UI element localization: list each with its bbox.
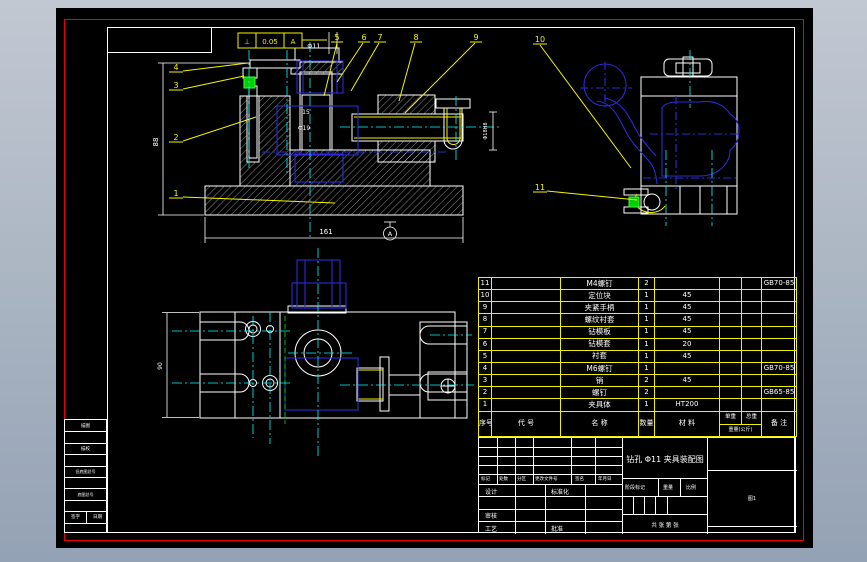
bom-cell-tw xyxy=(742,387,762,399)
bom-cell-qty: 1 xyxy=(639,302,655,314)
bom-cell-name: M6螺钉 xyxy=(561,362,639,374)
stage-mark-label: 阶段标记 xyxy=(625,484,645,491)
aux-date-label: 日期 xyxy=(87,514,108,520)
balloon-8: 8 xyxy=(413,33,418,42)
bom-row: 1夹具体1HT200 xyxy=(479,399,797,411)
scale-label: 比例 xyxy=(686,484,696,491)
bom-cell-no: 3 xyxy=(479,375,492,387)
revision-date-label: 年月日 xyxy=(598,476,612,482)
bom-row: 6钻模套120 xyxy=(479,338,797,350)
bom-cell-code xyxy=(492,314,561,326)
bom-cell-remark xyxy=(762,338,797,350)
bom-cell-uw xyxy=(720,290,742,302)
handle-highlight-edges xyxy=(357,370,383,399)
bom-header-weight-unit: 重量(公斤) xyxy=(720,424,762,436)
bom-header-name: 名 称 xyxy=(561,411,639,436)
aux-sign-label: 签字 xyxy=(65,514,86,520)
balloon-3: 3 xyxy=(173,81,178,90)
bom-cell-qty: 1 xyxy=(639,350,655,362)
bom-row: 10定位块145 xyxy=(479,290,797,302)
balloon-6: 6 xyxy=(361,33,366,42)
dim-front-width: 161 xyxy=(319,228,332,236)
bom-cell-remark xyxy=(762,314,797,326)
revision-count-label: 处数 xyxy=(499,476,508,482)
bom-cell-qty: 1 xyxy=(639,290,655,302)
bom-cell-uw xyxy=(720,399,742,411)
cad-viewport[interactable]: 88 161 Φ11 15 Φ19 Φ18H8 A ⊥ 0.05 A xyxy=(0,0,867,562)
view-front-section[interactable]: 88 161 Φ11 15 Φ19 Φ18H8 A ⊥ 0.05 A xyxy=(152,32,500,243)
dim-shaft: Φ18H8 xyxy=(483,122,489,139)
bom-row: 11M4螺钉2GB70-85 xyxy=(479,278,797,290)
datum-symbol: A xyxy=(388,230,393,238)
bom-cell-code xyxy=(492,399,561,411)
balloon-10: 10 xyxy=(535,35,545,44)
org-name: 图1 xyxy=(707,495,797,502)
bom-header-unit-weight: 单重 xyxy=(720,411,742,424)
bom-cell-material: 20 xyxy=(655,338,720,350)
drawing-title: 钻孔 Φ11 夹具装配图 xyxy=(625,454,705,465)
bom-cell-tw xyxy=(742,399,762,411)
bom-cell-tw xyxy=(742,302,762,314)
bom-cell-no: 1 xyxy=(479,399,492,411)
bom-row: 8螺纹衬套145 xyxy=(479,314,797,326)
bom-row: 5衬套145 xyxy=(479,350,797,362)
bom-cell-no: 6 xyxy=(479,338,492,350)
checker-label: 审核 xyxy=(485,511,497,520)
bom-cell-no: 5 xyxy=(479,350,492,362)
weight-label: 重量 xyxy=(663,484,673,491)
balloon-9: 9 xyxy=(473,33,478,42)
bom-cell-remark xyxy=(762,399,797,411)
bom-cell-no: 2 xyxy=(479,387,492,399)
bom-cell-material: 45 xyxy=(655,326,720,338)
revision-docno-label: 更改文件号 xyxy=(535,476,558,482)
revision-zone-label: 分区 xyxy=(517,476,526,482)
bom-header-qty: 数量 xyxy=(639,411,655,436)
aux-old-master-label: 旧底图总号 xyxy=(65,469,106,475)
bom-cell-material xyxy=(655,278,720,290)
view-side[interactable] xyxy=(580,50,740,226)
bom-cell-uw xyxy=(720,362,742,374)
bom-cell-code xyxy=(492,375,561,387)
bom-cell-uw xyxy=(720,375,742,387)
sheet-count-label: 共 张 第 张 xyxy=(626,521,704,529)
bom-cell-qty: 2 xyxy=(639,387,655,399)
bom-cell-tw xyxy=(742,338,762,350)
aux-master-label: 底图总号 xyxy=(65,492,106,498)
bom-cell-name: 销 xyxy=(561,375,639,387)
bom-header-total-weight: 总重 xyxy=(742,411,762,424)
approver-label: 批准 xyxy=(551,524,563,533)
dim-plan-height: 90 xyxy=(157,362,164,370)
standardization-label: 标准化 xyxy=(551,487,569,496)
workpiece-phantom-plan xyxy=(285,260,358,410)
bom-row: 9夹紧手柄145 xyxy=(479,302,797,314)
process-label: 工艺 xyxy=(485,524,497,533)
workpiece-phantom-side xyxy=(580,62,740,190)
bom-cell-name: 螺纹衬套 xyxy=(561,314,639,326)
bom-cell-qty: 1 xyxy=(639,314,655,326)
bom-header-no: 序号 xyxy=(479,411,492,436)
aux-trace-label: 描图 xyxy=(65,423,106,429)
bom-header-row: 序号 代 号 名 称 数量 材 料 单重 总重 备 注 xyxy=(479,411,797,424)
bom-row: 2螺钉2GB65-85 xyxy=(479,387,797,399)
bom-cell-no: 11 xyxy=(479,278,492,290)
bom-cell-tw xyxy=(742,350,762,362)
bom-cell-material: HT200 xyxy=(655,399,720,411)
bom-row: 3销245 xyxy=(479,375,797,387)
bom-cell-uw xyxy=(720,314,742,326)
view-plan[interactable]: 90 xyxy=(157,248,474,458)
aux-trace-check-label: 描校 xyxy=(65,446,106,452)
balloon-7: 7 xyxy=(377,33,382,42)
bom-cell-material: 45 xyxy=(655,290,720,302)
bom-header-material: 材 料 xyxy=(655,411,720,436)
bom-cell-material: 45 xyxy=(655,302,720,314)
bom-cell-no: 8 xyxy=(479,314,492,326)
bom-cell-name: 定位块 xyxy=(561,290,639,302)
bom-row: 7钻模板145 xyxy=(479,326,797,338)
dim-front-height: 88 xyxy=(152,138,160,147)
bom-cell-remark xyxy=(762,302,797,314)
bom-cell-tw xyxy=(742,314,762,326)
bom-header-code: 代 号 xyxy=(492,411,561,436)
bom-header-remark: 备 注 xyxy=(762,411,797,436)
bom-cell-material: 45 xyxy=(655,314,720,326)
bom-cell-remark xyxy=(762,326,797,338)
bom-row: 4M6螺钉1GB70-85 xyxy=(479,362,797,374)
selected-screw-highlight-front[interactable] xyxy=(244,77,255,88)
bom-cell-name: M4螺钉 xyxy=(561,278,639,290)
bom-cell-uw xyxy=(720,278,742,290)
aux-block: 描图 描校 旧底图总号 底图总号 签字 日期 xyxy=(64,419,107,533)
bom-cell-name: 夹具体 xyxy=(561,399,639,411)
bom-cell-code xyxy=(492,326,561,338)
bom-cell-remark: GB70-85 xyxy=(762,278,797,290)
bom-cell-code xyxy=(492,387,561,399)
bom-cell-material xyxy=(655,362,720,374)
dim-hole: Φ11 xyxy=(307,42,320,50)
dim-bore: Φ19 xyxy=(298,125,311,132)
bom-cell-qty: 2 xyxy=(639,278,655,290)
selected-screw-highlight-side[interactable] xyxy=(629,197,639,207)
bom-cell-uw xyxy=(720,302,742,314)
bom-cell-tw xyxy=(742,290,762,302)
bom-cell-no: 10 xyxy=(479,290,492,302)
balloon-1: 1 xyxy=(173,189,178,198)
bom-cell-uw xyxy=(720,338,742,350)
bom-cell-remark xyxy=(762,290,797,302)
bom-cell-material: 45 xyxy=(655,350,720,362)
bom-cell-tw xyxy=(742,326,762,338)
title-block: 标记 处数 分区 更改文件号 签名 年月日 设计 标准化 审核 工艺 批准 钻孔… xyxy=(478,437,796,533)
bom-cell-code xyxy=(492,290,561,302)
bom-cell-code xyxy=(492,302,561,314)
bom-cell-uw xyxy=(720,350,742,362)
bom-cell-remark: GB70-85 xyxy=(762,362,797,374)
balloon-4: 4 xyxy=(173,63,178,72)
bom-cell-qty: 2 xyxy=(639,375,655,387)
centerlines-plan xyxy=(172,248,474,458)
bom-cell-code xyxy=(492,362,561,374)
bom-cell-no: 7 xyxy=(479,326,492,338)
tolerance-symbol: ⊥ xyxy=(244,38,250,46)
designer-label: 设计 xyxy=(485,487,497,496)
bom-cell-tw xyxy=(742,375,762,387)
bom-cell-uw xyxy=(720,326,742,338)
bom-cell-code xyxy=(492,350,561,362)
dim-slot: 15 xyxy=(302,109,310,116)
tolerance-value: 0.05 xyxy=(262,38,278,46)
dimension-lines-plan xyxy=(162,313,199,418)
bom-cell-name: 夹紧手柄 xyxy=(561,302,639,314)
bom-cell-remark xyxy=(762,350,797,362)
bom-cell-qty: 1 xyxy=(639,338,655,350)
bom-cell-qty: 1 xyxy=(639,362,655,374)
bom-cell-no: 9 xyxy=(479,302,492,314)
bom-cell-no: 4 xyxy=(479,362,492,374)
bom-cell-name: 钻模板 xyxy=(561,326,639,338)
bom-cell-qty: 1 xyxy=(639,399,655,411)
bom-cell-material: 45 xyxy=(655,375,720,387)
bom-cell-remark xyxy=(762,375,797,387)
revision-mark-label: 标记 xyxy=(481,476,490,482)
bom-cell-material xyxy=(655,387,720,399)
bom-cell-uw xyxy=(720,387,742,399)
bom-cell-name: 螺钉 xyxy=(561,387,639,399)
bom-cell-qty: 1 xyxy=(639,326,655,338)
bom-table: 11M4螺钉2GB70-85 10定位块145 9夹紧手柄145 8螺纹衬套14… xyxy=(478,277,797,437)
balloon-2: 2 xyxy=(173,133,178,142)
bom-cell-name: 衬套 xyxy=(561,350,639,362)
bom-cell-name: 钻模套 xyxy=(561,338,639,350)
balloon-5: 5 xyxy=(334,33,339,42)
bom-cell-code xyxy=(492,338,561,350)
balloon-11: 11 xyxy=(535,183,545,192)
bom-cell-tw xyxy=(742,362,762,374)
tolerance-datum: A xyxy=(291,38,296,46)
bom-cell-remark: GB65-85 xyxy=(762,387,797,399)
bom-cell-code xyxy=(492,278,561,290)
revision-sign-label: 签名 xyxy=(575,476,584,482)
bom-cell-tw xyxy=(742,278,762,290)
